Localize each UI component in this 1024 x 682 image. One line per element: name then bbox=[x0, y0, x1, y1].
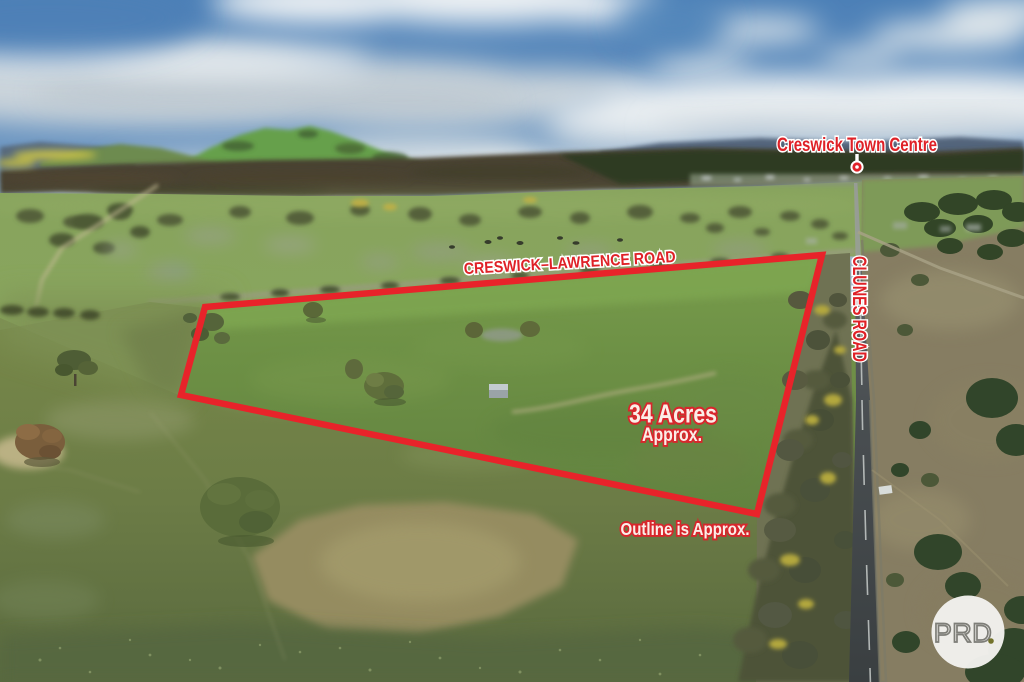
svg-text:PRD: PRD bbox=[934, 618, 993, 648]
svg-text:34 Acres: 34 Acres bbox=[629, 399, 717, 429]
svg-text:Approx.: Approx. bbox=[642, 425, 702, 446]
svg-text:Creswick Town Centre: Creswick Town Centre bbox=[777, 135, 937, 156]
svg-text:Outline is Approx.: Outline is Approx. bbox=[621, 519, 750, 539]
svg-text:CLUNES ROAD: CLUNES ROAD bbox=[848, 256, 869, 362]
